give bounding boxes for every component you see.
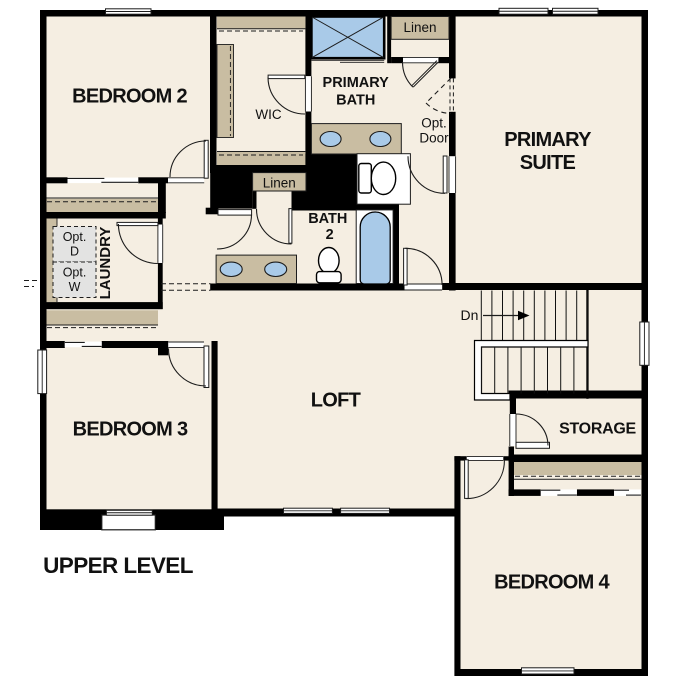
svg-text:2: 2 (326, 227, 334, 243)
svg-text:Opt.: Opt. (63, 230, 87, 244)
svg-text:Door: Door (419, 131, 449, 146)
svg-text:Linen: Linen (263, 176, 296, 191)
svg-text:LAUNDRY: LAUNDRY (97, 227, 114, 300)
svg-text:Opt.: Opt. (63, 266, 87, 280)
svg-text:STORAGE: STORAGE (559, 421, 636, 438)
svg-text:W: W (69, 280, 81, 294)
svg-text:PRIMARY: PRIMARY (323, 75, 390, 91)
svg-text:UPPER LEVEL: UPPER LEVEL (43, 553, 194, 578)
svg-text:LOFT: LOFT (311, 390, 361, 412)
svg-text:Dn: Dn (461, 307, 479, 323)
svg-text:Linen: Linen (403, 20, 436, 35)
svg-text:BATH: BATH (336, 93, 375, 109)
svg-text:BEDROOM 2: BEDROOM 2 (72, 86, 187, 108)
svg-text:BEDROOM 3: BEDROOM 3 (73, 419, 188, 441)
svg-text:BATH: BATH (308, 211, 347, 227)
svg-text:D: D (70, 245, 79, 259)
svg-text:WIC: WIC (255, 107, 281, 122)
svg-text:BEDROOM 4: BEDROOM 4 (494, 572, 610, 594)
svg-text:Opt.: Opt. (421, 116, 447, 131)
svg-text:PRIMARY: PRIMARY (504, 129, 592, 151)
svg-text:SUITE: SUITE (520, 152, 576, 174)
